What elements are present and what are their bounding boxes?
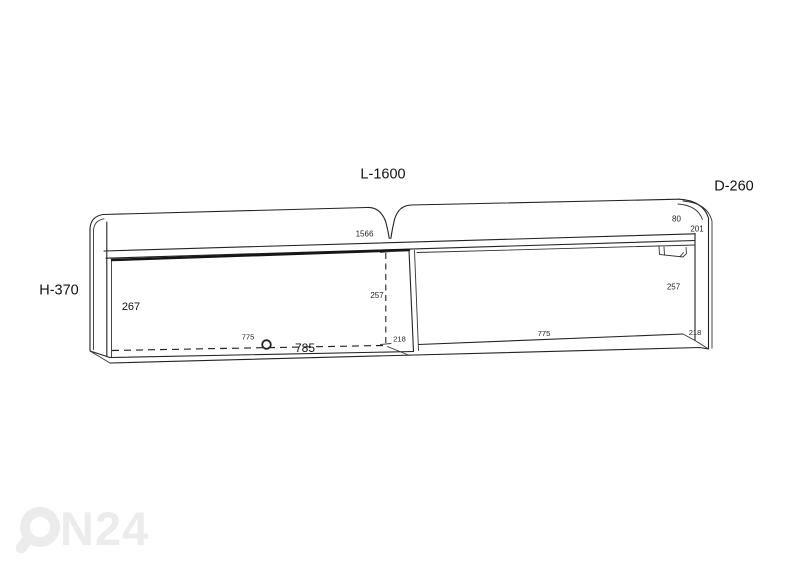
dim-right-inner-height: 257 [667, 283, 681, 292]
dim-left-inner-depth: 218 [393, 335, 406, 344]
door-dashed-horizontal [112, 346, 383, 351]
door-right-edge [409, 250, 414, 352]
furniture-dimension-diagram: L-1600 D-260 H-370 1566 80 201 267 257 2… [0, 0, 792, 566]
shelf-top-edge [104, 234, 695, 251]
label-height: H-370 [39, 283, 79, 299]
door-top-edge [112, 250, 409, 260]
dim-right-inner-depth: 218 [689, 328, 702, 337]
right-panel-outer-edge [679, 199, 709, 349]
dim-right-top-depth: 201 [690, 225, 704, 234]
dim-inner-length: 1566 [356, 230, 374, 239]
label-depth: D-260 [714, 179, 754, 195]
dim-door-width: 785 [295, 341, 315, 355]
shelf-underside-line [417, 245, 695, 253]
dim-door-height: 267 [122, 301, 140, 313]
back-rail-top-right-edge [391, 199, 679, 238]
door-knob [262, 340, 271, 349]
label-length: L-1600 [360, 167, 405, 183]
door-depth-diagonal [388, 347, 410, 356]
back-rail-top-left-edge [103, 207, 389, 238]
dim-left-inner-width: 775 [242, 333, 255, 342]
dim-right-inner-width: 775 [538, 329, 551, 338]
dash-tick-bottom [381, 344, 392, 345]
shelf-bracket [659, 247, 687, 258]
divider-edge [415, 251, 419, 351]
right-panel-inner-corner [678, 204, 703, 220]
dim-back-rail-height: 80 [672, 215, 681, 224]
left-panel-outer-edge [90, 215, 103, 352]
right-panel-outer-second-edge [683, 201, 712, 348]
magnifier-handle-icon [21, 538, 29, 548]
on24-logo: N24 [16, 500, 166, 555]
watermark-text: N24 [60, 502, 149, 555]
left-panel-inner-contour [94, 219, 105, 350]
dim-door-inner-height: 257 [370, 291, 384, 300]
floor-back-edge-right [419, 334, 684, 345]
on24-watermark: N24 [16, 500, 166, 555]
shelf-line-drawing: L-1600 D-260 H-370 1566 80 201 267 257 2… [0, 0, 792, 566]
